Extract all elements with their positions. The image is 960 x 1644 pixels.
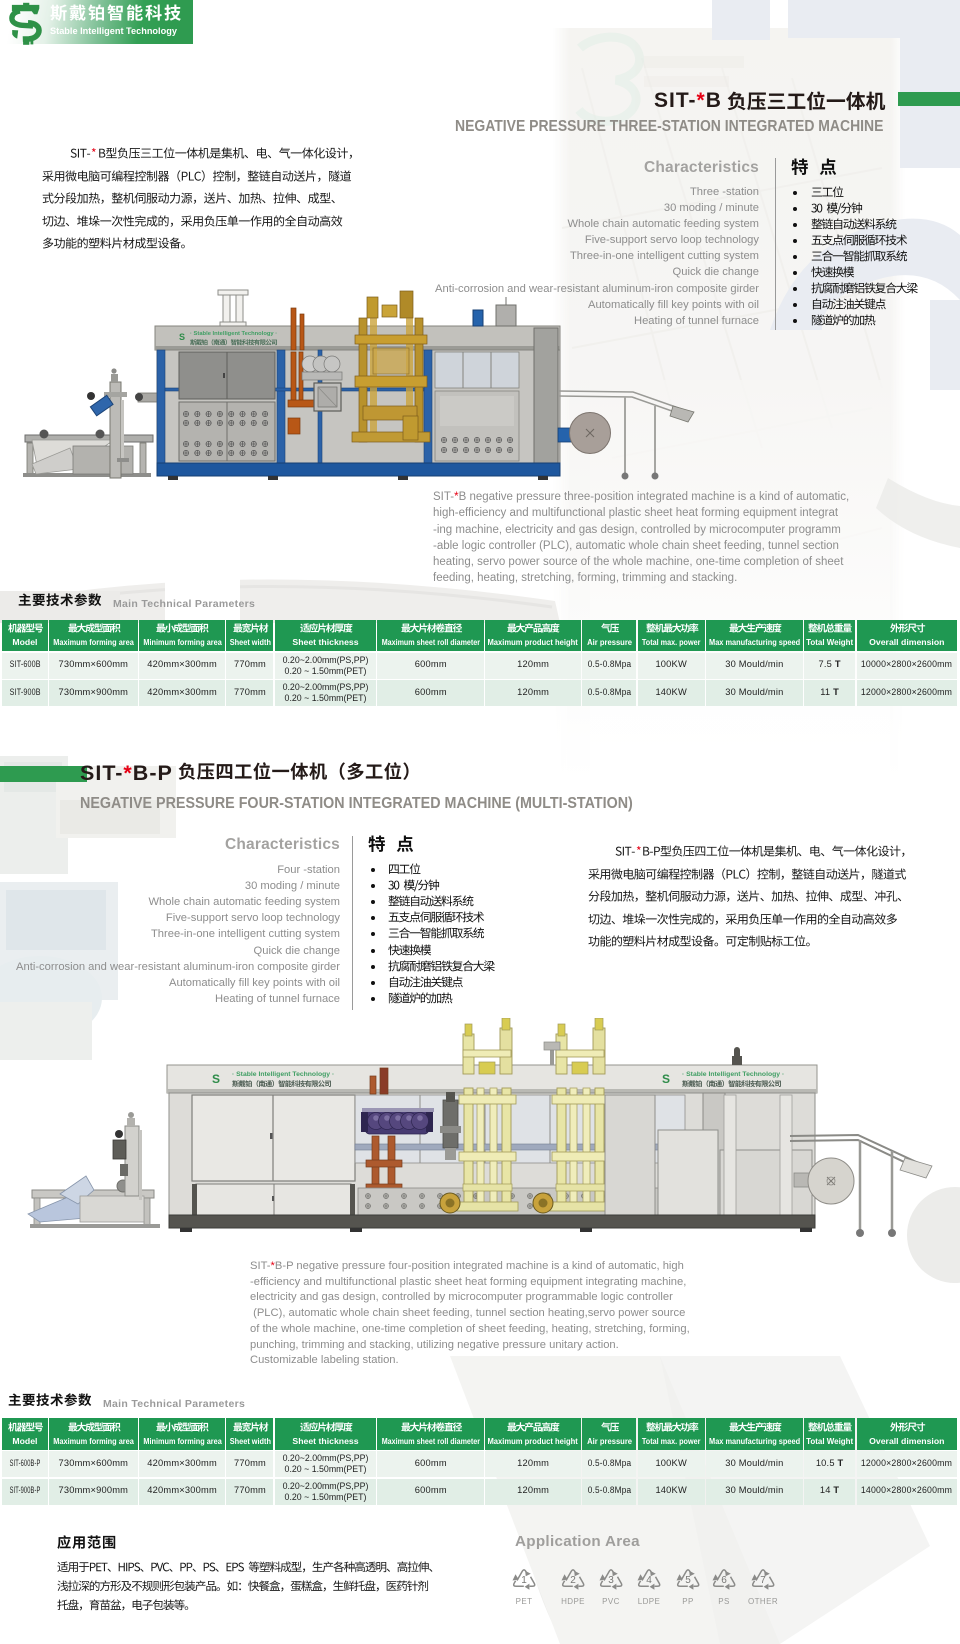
svg-text:6: 6: [721, 1575, 727, 1586]
svg-text:S: S: [662, 1072, 670, 1086]
svg-text:5: 5: [685, 1575, 691, 1586]
svg-text:2: 2: [570, 1575, 576, 1586]
svg-text:3: 3: [608, 1575, 614, 1586]
svg-text:S: S: [212, 1072, 220, 1086]
svg-text:7: 7: [760, 1575, 766, 1586]
svg-text:S: S: [179, 332, 185, 342]
svg-text:1: 1: [521, 1575, 527, 1586]
svg-text:4: 4: [646, 1575, 652, 1586]
